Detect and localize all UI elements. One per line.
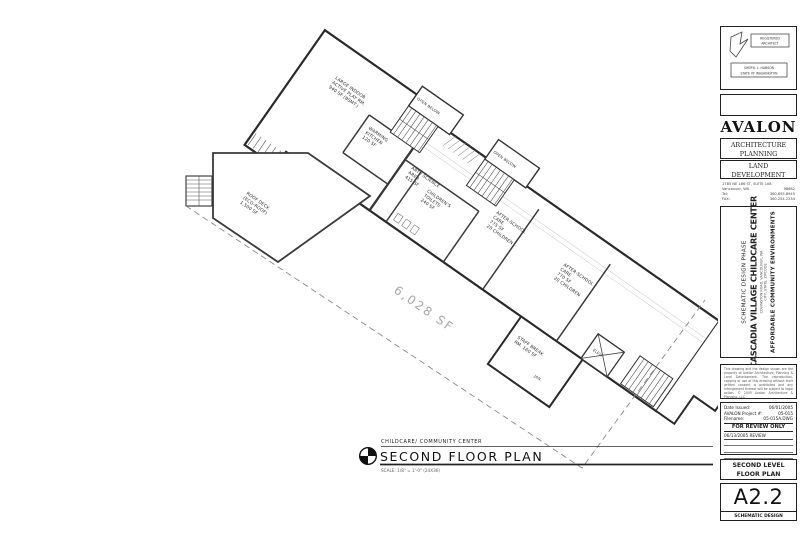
plan-subtitle: CHILDCARE/ COMMUNITY CENTER <box>381 439 482 445</box>
sheet-number: A2.2 <box>721 484 796 512</box>
floor-plan-drawing: LARGE INDOORACTIVE PLAY RM.940 SF (BSMT.… <box>0 0 718 540</box>
project-phase: SCHEMATIC DESIGN PHASE <box>741 240 747 324</box>
firm-discipline-4: DEVELOPMENT <box>721 171 796 180</box>
deck-exterior-stair <box>186 176 212 206</box>
project-vertical-text: SCHEMATIC DESIGN PHASE CASCADIA VILLAGE … <box>720 206 797 358</box>
seal-sketch-icon <box>730 32 748 57</box>
issue-filename: 05-015A.DWG <box>763 416 793 422</box>
firm-discipline-box-1: ARCHITECTURE PLANNING <box>720 138 797 159</box>
stamp-line1: REGISTERED <box>760 37 780 41</box>
total-area-text: 6,028 SF <box>391 283 457 335</box>
sheet-number-box: A2.2 SCHEMATIC DESIGN <box>720 483 797 521</box>
sheet-title-box: SECOND LEVEL FLOOR PLAN <box>720 459 797 480</box>
revision-entry: 06/13/2005 REVIEW <box>724 433 793 440</box>
firm-fax: 360.254.2234 <box>770 197 795 202</box>
sheet-title-line2: FLOOR PLAN <box>721 471 796 480</box>
building-group: LARGE INDOORACTIVE PLAY RM.940 SF (BSMT.… <box>222 22 718 486</box>
project-address-1: COVINGTON ROAD, VANCOUVER, WA <box>759 251 763 314</box>
stamp-line2: ARCHITECT <box>761 42 779 46</box>
disclaimer-box: This drawing and the design shown are th… <box>720 364 797 399</box>
issue-file-label: Filename: <box>724 416 744 422</box>
stamp-state: STATE OF WASHINGTON <box>741 72 779 76</box>
drawing-sheet: LARGE INDOORACTIVE PLAY RM.940 SF (BSMT.… <box>0 0 800 540</box>
firm-address-box: 1785 NE 186 ST, SUITE 108 Vancouver, WA … <box>720 181 797 204</box>
architect-stamp-box: REGISTERED ARCHITECT SHERYL L. HANSON ST… <box>720 26 797 90</box>
plan-scale: SCALE: 1/8" = 1'-0" (24X36) <box>381 468 440 473</box>
project-client: AFFORDABLE COMMUNITY ENVIRONMENTS <box>770 211 776 353</box>
firm-discipline-box-2: LAND DEVELOPMENT <box>720 160 797 179</box>
stamp-name: SHERYL L. HANSON <box>744 66 775 70</box>
total-area-annotation: 6,028 SF <box>391 283 457 335</box>
issue-box: Date Issued: 06/01/2005 AVALON Project #… <box>720 402 797 455</box>
firm-discipline-1: ARCHITECTURE <box>721 141 796 150</box>
sheet-title-line1: SECOND LEVEL <box>721 462 796 471</box>
blank-box <box>720 94 797 116</box>
sheet-phase: SCHEMATIC DESIGN <box>721 512 796 521</box>
plan-title: SECOND FLOOR PLAN <box>380 449 543 464</box>
architect-stamp: REGISTERED ARCHITECT SHERYL L. HANSON ST… <box>721 27 796 89</box>
firm-discipline-3: LAND <box>721 162 796 171</box>
project-address-2: CITY, STATE, ZIPCODE <box>763 263 767 300</box>
firm-discipline-2: PLANNING <box>721 150 796 159</box>
plan-title-group: CHILDCARE/ COMMUNITY CENTER SECOND FLOOR… <box>360 439 713 473</box>
firm-name: AVALON <box>720 118 797 136</box>
for-review-only: FOR REVIEW ONLY <box>724 423 793 432</box>
project-name: CASCADIA VILLAGE CHILDCARE CENTER <box>748 196 758 368</box>
project-box: SCHEMATIC DESIGN PHASE CASCADIA VILLAGE … <box>720 206 797 358</box>
firm-fax-label: FAX: <box>722 197 730 202</box>
